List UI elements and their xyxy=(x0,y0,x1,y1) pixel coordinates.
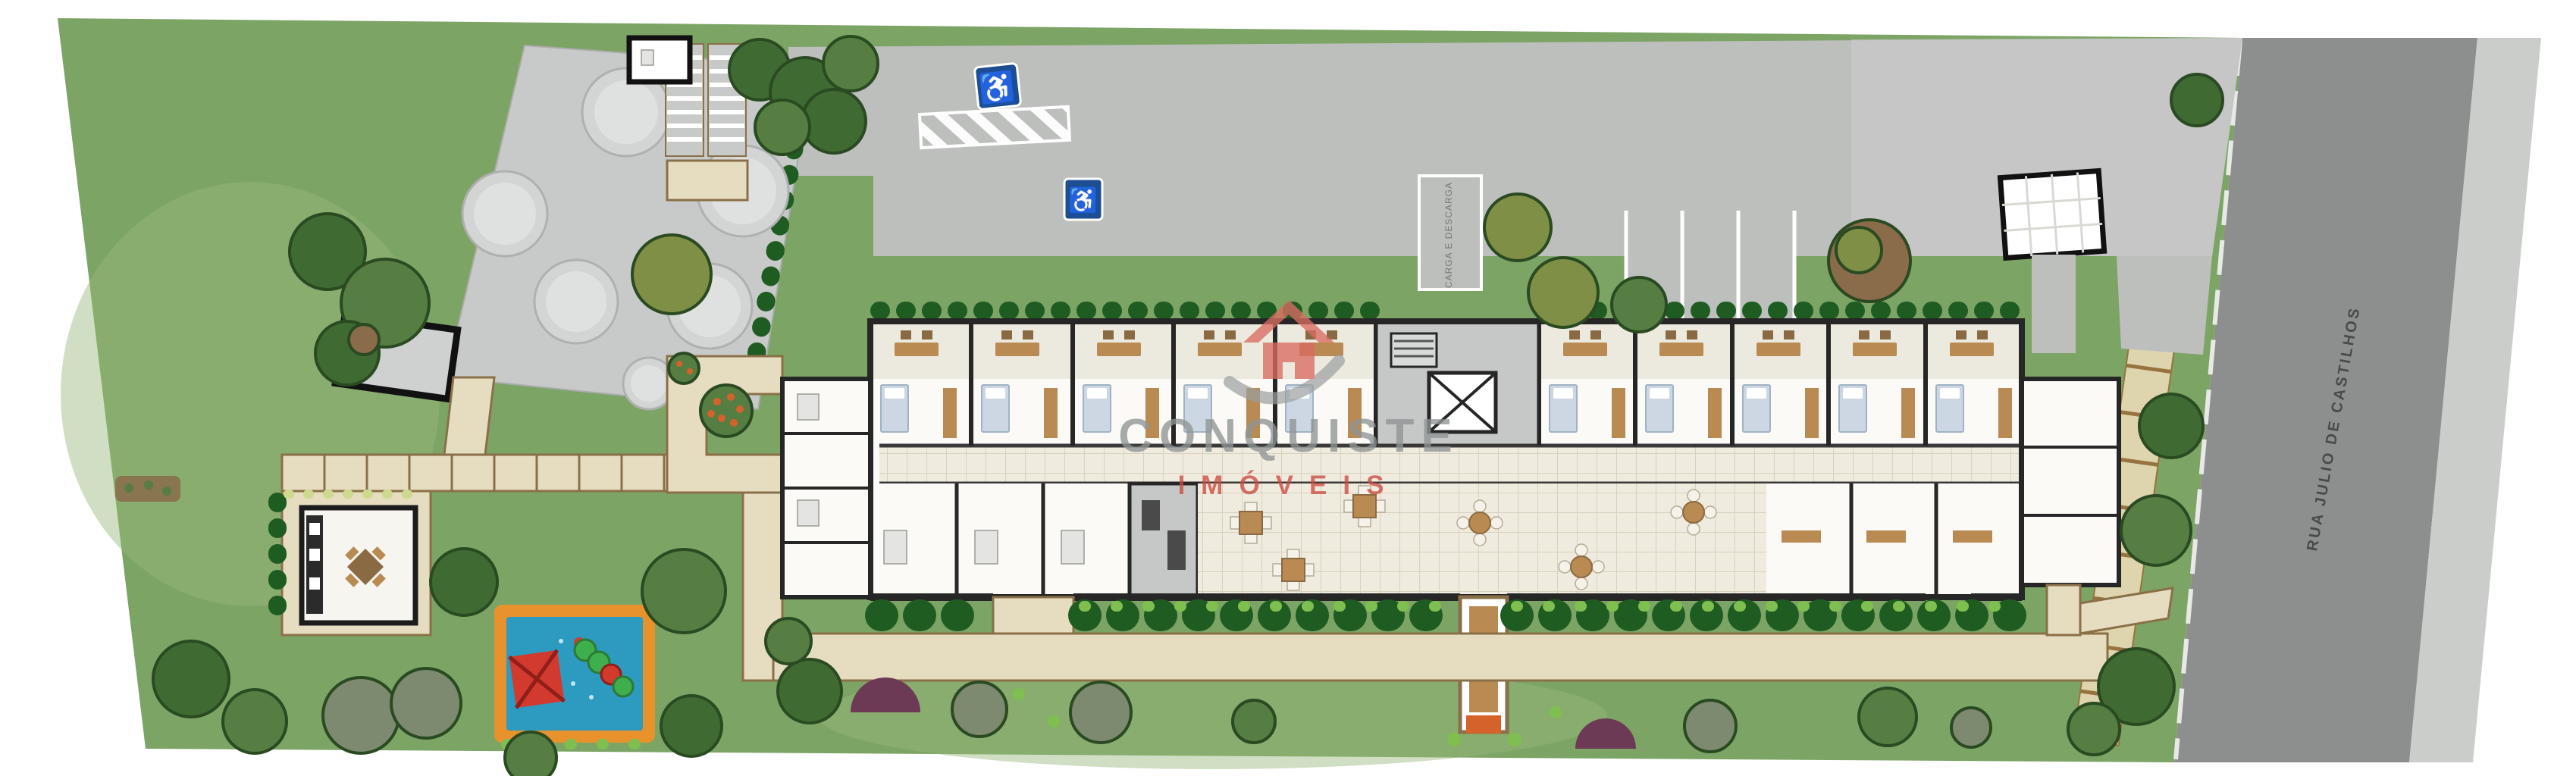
tree xyxy=(2068,703,2120,755)
annex-left xyxy=(782,379,870,597)
tree xyxy=(223,690,287,753)
accessible-parking-sign-1: ♿ xyxy=(974,63,1021,110)
tree xyxy=(661,696,722,756)
tree xyxy=(323,677,399,753)
accessible-parking-sign-2: ♿ xyxy=(1064,179,1102,220)
site-plan-svg: RUA JULIO DE CASTILHOS ♿ ♿ CARGA E DESCA… xyxy=(0,0,2576,776)
tree xyxy=(766,618,811,664)
tree xyxy=(642,549,725,633)
stairs-landing-path xyxy=(667,161,747,200)
tree xyxy=(391,668,461,738)
water-tank xyxy=(534,260,618,343)
bed xyxy=(1936,385,1963,432)
tree xyxy=(778,659,841,723)
tree xyxy=(153,641,229,717)
annex-path-stub xyxy=(2047,585,2080,635)
trash-room xyxy=(629,38,690,82)
loading-bay: CARGA E DESCARGA xyxy=(1419,176,1481,289)
flower-bed-left xyxy=(115,476,180,502)
tree xyxy=(431,549,497,615)
flower-bed xyxy=(700,385,752,436)
bed xyxy=(1839,385,1866,432)
flower-bed-small xyxy=(669,353,699,383)
gazebo xyxy=(277,491,431,635)
site-plan-image: RUA JULIO DE CASTILHOS ♿ ♿ CARGA E DESCA… xyxy=(0,0,2576,776)
bed xyxy=(982,385,1009,432)
water-tank xyxy=(462,171,547,256)
wheelchair-icon: ♿ xyxy=(1067,186,1098,215)
loading-bay-label: CARGA E DESCARGA xyxy=(1443,182,1454,288)
corridor xyxy=(879,446,2115,483)
driveway-street-apron xyxy=(2117,256,2212,355)
bed xyxy=(1550,385,1577,432)
bottom-garden-path xyxy=(773,634,2107,681)
tree xyxy=(2171,74,2223,126)
utility-access-path xyxy=(2032,255,2076,353)
tree xyxy=(349,324,379,355)
bed xyxy=(1083,385,1111,432)
watermark-segment-text: IMÓVEIS xyxy=(1178,470,1400,500)
wheelchair-icon: ♿ xyxy=(977,69,1018,108)
playground xyxy=(494,605,655,744)
play-structure xyxy=(509,650,565,708)
bed xyxy=(881,385,908,432)
tree xyxy=(1528,258,1598,327)
bed xyxy=(1646,385,1673,432)
stairwell xyxy=(1391,333,1437,367)
tree xyxy=(2121,496,2191,565)
tree xyxy=(1836,227,1882,273)
tree xyxy=(1612,277,1666,332)
bed xyxy=(1743,385,1770,432)
annex-right xyxy=(2022,379,2119,585)
tree xyxy=(632,235,711,314)
utility-room-right xyxy=(2001,171,2104,258)
tree xyxy=(1484,194,1551,261)
tree xyxy=(505,732,556,776)
technical-room xyxy=(1130,483,1198,597)
watermark-brand-text: CONQUISTE xyxy=(1118,410,1459,462)
service-rooms-left xyxy=(870,483,1130,597)
tree xyxy=(2139,394,2203,458)
no-parking-hatch xyxy=(920,107,1070,148)
